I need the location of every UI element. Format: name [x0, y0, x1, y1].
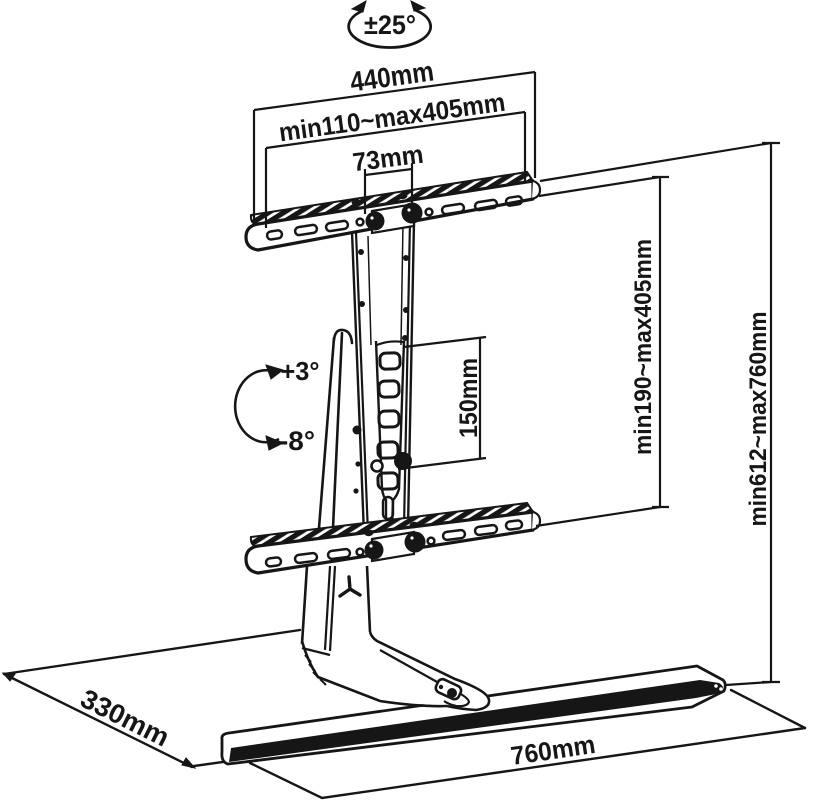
svg-text:-8°: -8°: [279, 426, 315, 456]
svg-text:min190~max405mm: min190~max405mm: [630, 239, 657, 455]
svg-text:±25°: ±25°: [364, 10, 416, 40]
svg-text:min612~max760mm: min612~max760mm: [745, 312, 772, 527]
svg-text:+3°: +3°: [281, 356, 320, 386]
svg-text:150mm: 150mm: [455, 358, 483, 438]
